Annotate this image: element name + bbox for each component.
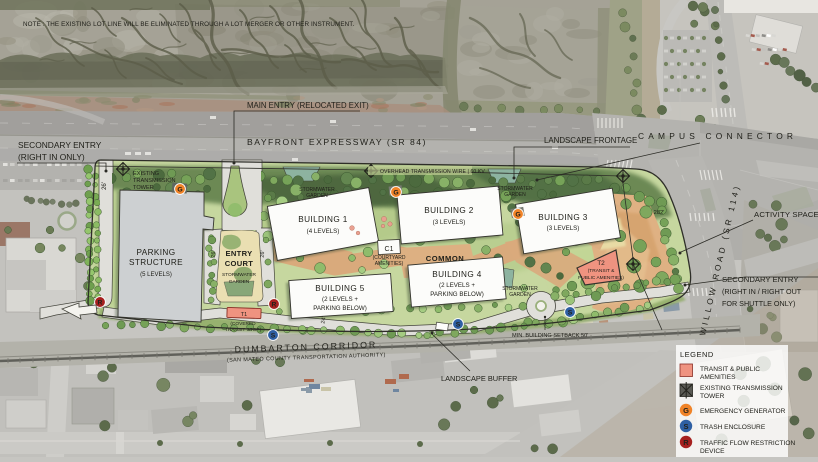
svg-text:26': 26' [211,250,218,258]
svg-text:BUILDING 3: BUILDING 3 [538,213,588,222]
svg-text:COURT: COURT [225,259,254,268]
svg-text:SECONDARY ENTRY: SECONDARY ENTRY [18,140,102,150]
svg-text:PARKING BELOW): PARKING BELOW) [430,291,484,298]
svg-text:TRAFFIC FLOW RESTRICTION: TRAFFIC FLOW RESTRICTION [700,440,795,447]
svg-text:S: S [456,322,461,329]
svg-text:ACTIVITY SPACE: ACTIVITY SPACE [754,210,818,219]
svg-text:GARDEN: GARDEN [509,292,531,298]
svg-text:COMMON: COMMON [426,254,464,263]
svg-text:PUBLIC AMENITIES): PUBLIC AMENITIES) [578,275,624,281]
svg-text:T2: T2 [597,260,605,267]
svg-text:26': 26' [102,182,108,190]
svg-text:GARDEN: GARDEN [306,193,328,199]
svg-text:BUILDING 1: BUILDING 1 [298,215,348,224]
svg-text:26': 26' [260,250,267,258]
svg-text:(RIGHT IN ONLY): (RIGHT IN ONLY) [18,152,85,162]
svg-text:R: R [98,300,103,307]
svg-text:LANDSCAPE FRONTAGE: LANDSCAPE FRONTAGE [544,136,637,145]
svg-text:R: R [272,302,277,309]
svg-text:(3 LEVELS): (3 LEVELS) [547,225,580,232]
svg-text:G: G [683,406,689,415]
svg-text:SECONDARY ENTRY: SECONDARY ENTRY [722,275,798,284]
svg-text:ENTRY: ENTRY [226,249,253,258]
svg-text:FOR SHUTTLE ONLY): FOR SHUTTLE ONLY) [722,299,795,308]
svg-text:TRANSMISSION: TRANSMISSION [133,178,176,184]
svg-text:(4 LEVELS): (4 LEVELS) [307,228,340,235]
svg-text:BAYFRONT EXPRESSWAY (SR 84): BAYFRONT EXPRESSWAY (SR 84) [247,137,427,147]
svg-text:BUILDING 4: BUILDING 4 [432,270,482,279]
svg-text:DEVICE: DEVICE [700,448,725,455]
svg-text:24': 24' [320,316,327,324]
svg-text:STRUCTURE: STRUCTURE [129,258,183,267]
svg-text:AMENITIES: AMENITIES [700,374,736,381]
svg-text:STORMWATER: STORMWATER [222,272,257,278]
svg-text:EXISTING TRANSMISSION: EXISTING TRANSMISSION [700,385,783,392]
svg-text:(RIGHT IN / RIGHT OUT: (RIGHT IN / RIGHT OUT [722,287,802,296]
svg-text:G: G [393,190,398,197]
svg-text:(2 LEVELS +: (2 LEVELS + [322,296,358,303]
svg-text:CAMPUS CONNECTOR: CAMPUS CONNECTOR [638,131,797,141]
svg-text:NOTE : THE EXISTING LOT LINE W: NOTE : THE EXISTING LOT LINE WILL BE ELI… [23,21,355,28]
svg-text:LEGEND: LEGEND [680,350,714,359]
svg-text:AMENITIES): AMENITIES) [375,261,404,267]
svg-text:C1: C1 [385,246,394,253]
svg-text:S: S [271,333,276,340]
svg-text:(5 LEVELS): (5 LEVELS) [140,272,172,278]
svg-text:S: S [568,310,573,317]
svg-text:R: R [683,438,689,447]
svg-text:T1: T1 [241,312,247,318]
svg-text:TRANSIT & PUBLIC: TRANSIT & PUBLIC [700,366,760,373]
svg-text:OVERHEAD TRANSMISSION WIRE | 6: OVERHEAD TRANSMISSION WIRE | 60 KV [380,169,485,175]
svg-text:282': 282' [654,210,665,216]
svg-text:(COVERED: (COVERED [230,321,256,327]
svg-text:GARDEN: GARDEN [229,279,250,285]
svg-text:G: G [515,212,520,219]
svg-text:EMERGENCY GENERATOR: EMERGENCY GENERATOR [700,408,786,415]
svg-text:TOWER: TOWER [133,185,154,191]
svg-text:TRASH ENCLOSURE: TRASH ENCLOSURE [700,424,766,431]
svg-text:BUILDING 5: BUILDING 5 [315,284,365,293]
svg-text:TOWER: TOWER [700,393,725,400]
svg-text:PARKING: PARKING [136,248,175,257]
svg-text:G: G [177,187,182,194]
svg-text:S: S [683,422,688,431]
svg-text:(2 LEVELS +: (2 LEVELS + [439,282,475,289]
svg-text:LANDSCAPE BUFFER: LANDSCAPE BUFFER [441,374,517,383]
svg-text:(3 LEVELS): (3 LEVELS) [433,219,466,226]
svg-text:BUILDING 2: BUILDING 2 [424,206,474,215]
svg-text:MAIN ENTRY (RELOCATED EXIT): MAIN ENTRY (RELOCATED EXIT) [247,101,369,110]
svg-text:MIN. BUILDING SETBACK 50': MIN. BUILDING SETBACK 50' [512,333,588,339]
svg-text:(TRANSIT &: (TRANSIT & [588,268,615,274]
svg-text:GARDEN: GARDEN [504,192,526,198]
svg-text:EXISTING: EXISTING [133,171,159,177]
svg-text:PARKING BELOW): PARKING BELOW) [313,305,367,312]
